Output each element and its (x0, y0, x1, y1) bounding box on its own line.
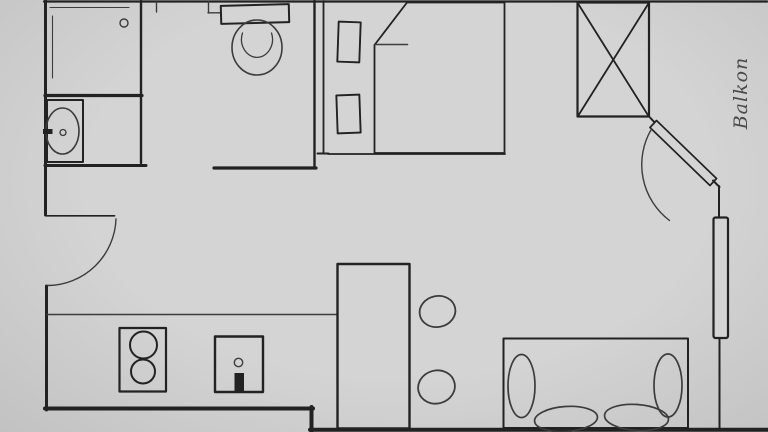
pillow (336, 95, 360, 134)
kitchen-island (338, 264, 410, 429)
walls (44, 1, 768, 432)
window-frame (714, 218, 729, 339)
floor-plan-drawing (0, 0, 768, 432)
sofa (504, 339, 689, 432)
kitchen-sink-drain-icon (234, 358, 242, 366)
entrance-door-swing-arc (48, 219, 116, 286)
balcony-window (714, 218, 729, 339)
sink-faucet-icon (43, 129, 53, 134)
shower-drain-icon (120, 19, 128, 27)
balcony-door-jamb (713, 181, 720, 188)
sofa-armrest-cushion (654, 354, 682, 417)
balcony-label: Balkon (730, 57, 752, 130)
toilet (221, 4, 289, 75)
bed-outline (375, 3, 505, 154)
toilet-bowl (232, 20, 282, 75)
sink-drain-icon (60, 130, 66, 136)
floor-plan-canvas: Balkon (0, 0, 768, 432)
pillow (337, 22, 360, 63)
balcony-door (642, 118, 720, 221)
stove-burner-icon (130, 332, 157, 359)
balcony-door-leaf (650, 121, 717, 186)
toilet-tank (221, 4, 289, 24)
island-outline (338, 264, 410, 429)
kitchen-sink (215, 337, 263, 393)
bathroom-sink (43, 100, 83, 162)
entrance-door (46, 216, 116, 286)
wardrobe (578, 3, 650, 117)
sofa-armrest-cushion (508, 355, 535, 418)
sofa-outline (504, 339, 689, 429)
bar-stools (414, 293, 458, 408)
kitchen-sink-faucet-icon (235, 373, 245, 392)
bar-stool (417, 293, 459, 331)
bar-stool (414, 366, 458, 407)
stove (120, 328, 167, 392)
bed (375, 3, 505, 154)
bed-pillows (336, 22, 360, 134)
toilet-seat (242, 33, 273, 57)
stove-burner-icon (131, 360, 155, 384)
shower (50, 8, 129, 79)
